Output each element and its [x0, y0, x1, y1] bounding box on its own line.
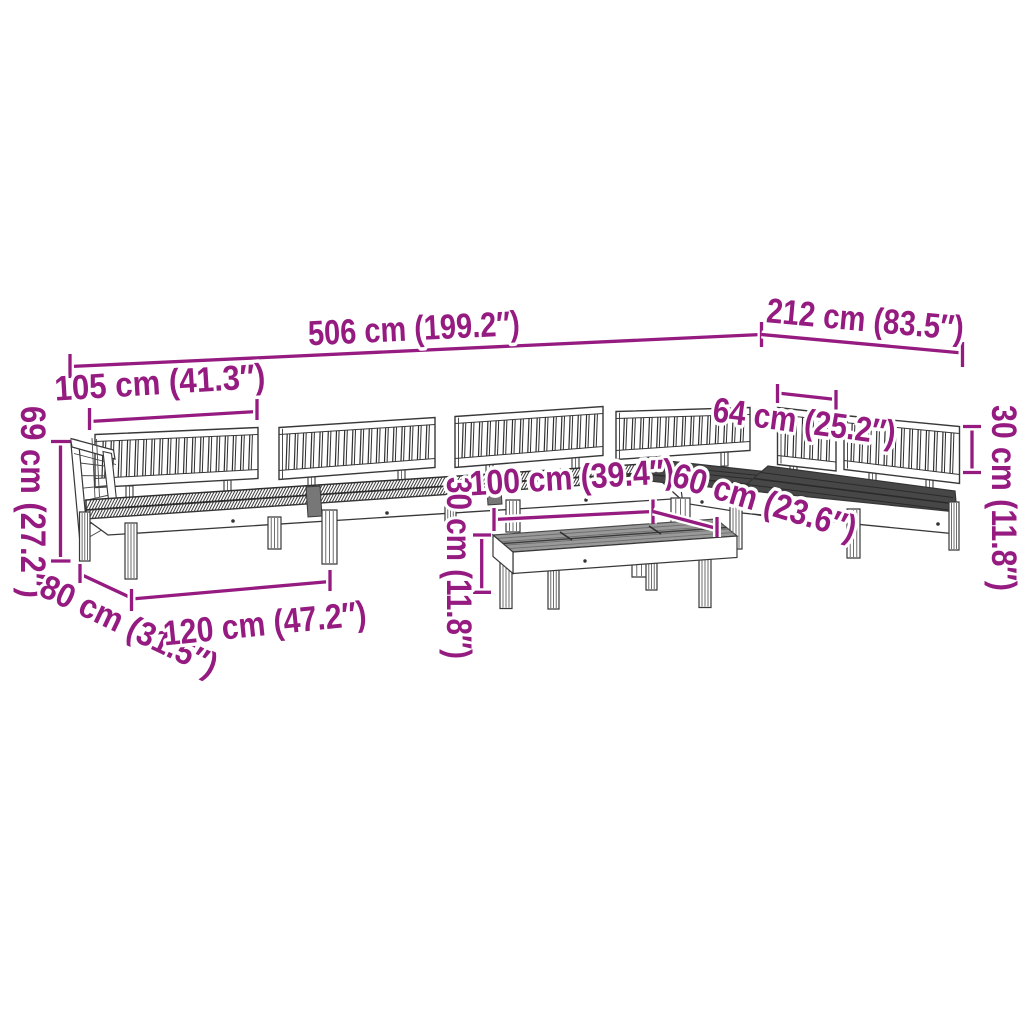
svg-text:30 cm (11.8″): 30 cm (11.8″)	[439, 477, 478, 659]
svg-text:69 cm (27.2″): 69 cm (27.2″)	[13, 406, 52, 598]
svg-text:30 cm (11.8″): 30 cm (11.8″)	[984, 405, 1023, 591]
svg-text:120 cm (47.2″): 120 cm (47.2″)	[161, 594, 368, 653]
